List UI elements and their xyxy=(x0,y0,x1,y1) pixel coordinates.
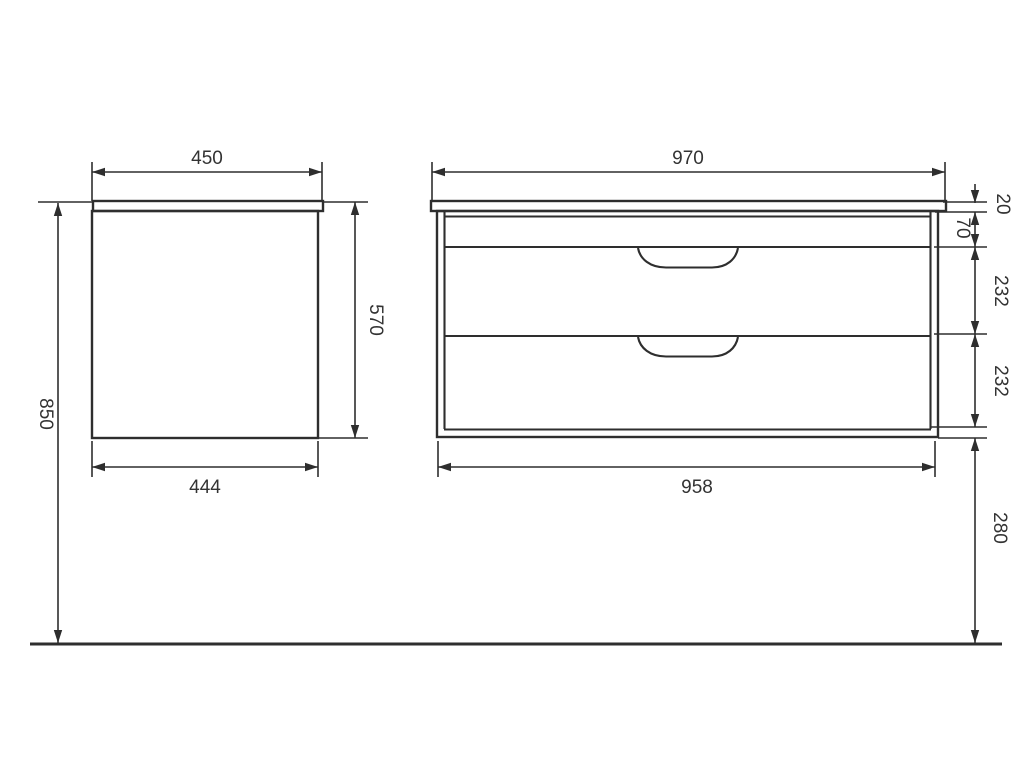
technical-drawing: 450 570 444 850 xyxy=(0,0,1024,768)
dim-drawer-2: 232 xyxy=(971,334,1011,427)
dim-label-970: 970 xyxy=(672,148,704,169)
dim-side-body-height: 570 xyxy=(318,202,386,438)
dim-arrowhead xyxy=(351,425,359,438)
dim-side-top-width: 450 xyxy=(92,148,322,201)
drawer-2-handle xyxy=(638,337,738,357)
side-cabinet-body xyxy=(92,211,318,438)
dim-label-570: 570 xyxy=(365,304,386,336)
dim-label-20: 20 xyxy=(992,193,1013,214)
front-view xyxy=(431,201,946,437)
dim-top-section: 70 xyxy=(952,212,979,247)
dim-arrowhead xyxy=(54,203,62,216)
dim-arrowhead xyxy=(971,247,979,260)
dim-label-444: 444 xyxy=(189,477,221,498)
dim-floor-clearance: 280 xyxy=(971,438,1010,643)
dim-label-850: 850 xyxy=(35,398,56,430)
dim-arrowhead xyxy=(971,321,979,334)
dim-overall-height: 850 xyxy=(35,202,92,643)
dim-arrowhead xyxy=(932,168,945,176)
dim-arrowhead xyxy=(971,630,979,643)
dim-label-70: 70 xyxy=(952,217,973,238)
dim-arrowhead xyxy=(438,463,451,471)
dim-arrowhead xyxy=(922,463,935,471)
dim-arrowhead xyxy=(971,334,979,347)
dim-arrowhead xyxy=(971,414,979,427)
dim-label-232-lower: 232 xyxy=(990,365,1011,397)
front-countertop xyxy=(431,201,946,211)
dim-label-958: 958 xyxy=(681,477,713,498)
dim-label-232-upper: 232 xyxy=(990,275,1011,307)
dim-countertop-thickness: 20 xyxy=(971,184,1013,215)
dim-arrowhead xyxy=(309,168,322,176)
dim-side-bottom-width: 444 xyxy=(92,441,318,498)
drawer-1-handle xyxy=(638,248,738,268)
vanity-dimension-diagram: 450 570 444 850 xyxy=(0,0,1024,768)
side-countertop xyxy=(93,201,323,211)
dim-front-bottom-width: 958 xyxy=(438,441,935,498)
front-cabinet-body xyxy=(437,211,938,437)
dim-chain-right: 20 70 232 232 280 xyxy=(931,184,1013,643)
dim-arrowhead xyxy=(971,190,979,203)
dim-label-280: 280 xyxy=(989,512,1010,544)
dim-front-top-width: 970 xyxy=(432,148,945,200)
dim-arrowhead xyxy=(305,463,318,471)
dim-arrowhead xyxy=(92,463,105,471)
dim-drawer-1: 232 xyxy=(971,247,1011,334)
dim-arrowhead xyxy=(92,168,105,176)
dim-arrowhead xyxy=(351,202,359,215)
dim-label-450: 450 xyxy=(191,148,223,169)
dim-arrowhead xyxy=(54,630,62,643)
dim-arrowhead xyxy=(971,438,979,451)
dim-arrowhead xyxy=(432,168,445,176)
side-view xyxy=(92,201,323,438)
